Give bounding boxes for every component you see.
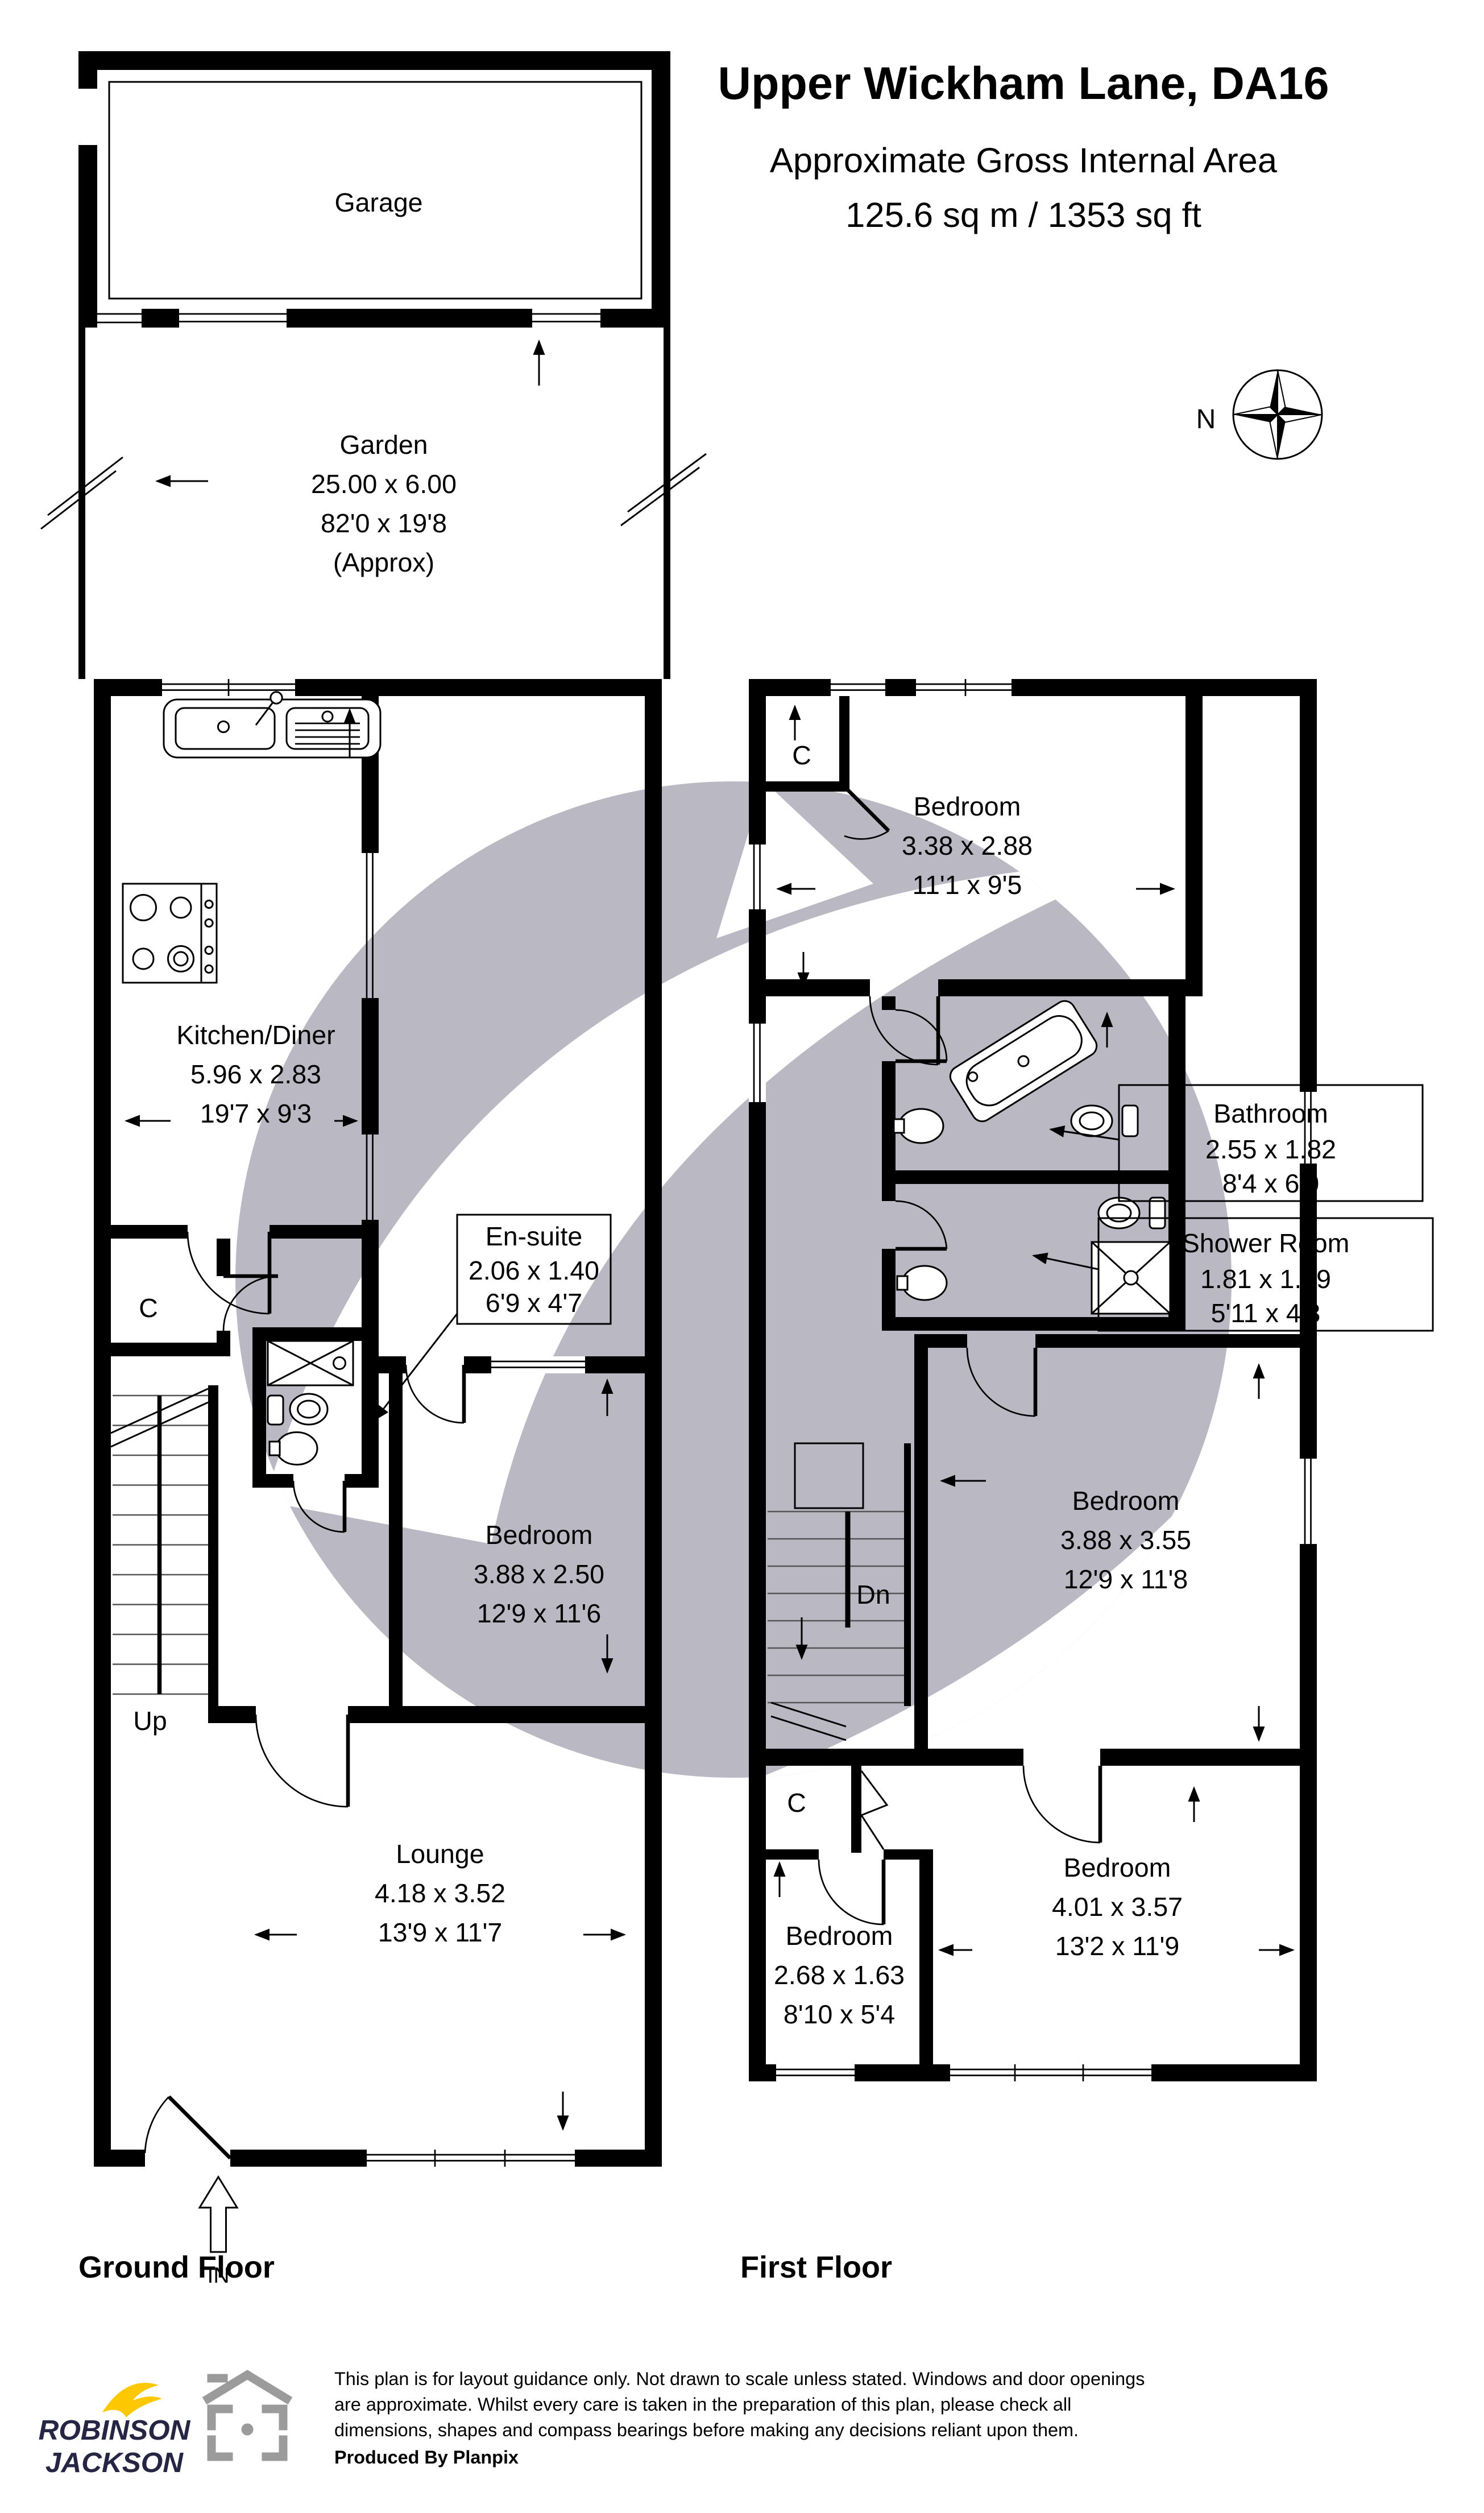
lounge-name: Lounge	[396, 1839, 484, 1869]
bedroom-small-imperial: 8'10 x 5'4	[784, 1999, 895, 2029]
bathroom-metric: 2.55 x 1.82	[1205, 1135, 1336, 1164]
garden-metric: 25.00 x 6.00	[311, 469, 457, 499]
bedroom-rear-imperial: 11'1 x 9'5	[913, 870, 1022, 900]
bedroom-front-metric: 4.01 x 3.57	[1052, 1892, 1183, 1922]
closet-label-ff-top: C	[792, 740, 811, 770]
kitchen-name: Kitchen/Diner	[176, 1020, 335, 1050]
closet-label-ff-bottom: C	[787, 1788, 806, 1818]
bedroom-gf-name: Bedroom	[486, 1520, 593, 1550]
toilet-icon	[268, 1394, 328, 1425]
bedroom-middle-imperial: 12'9 x 11'8	[1064, 1564, 1188, 1594]
room-label-bedroom-rear: Bedroom 3.38 x 2.88 11'1 x 9'5	[902, 792, 1033, 900]
room-label-bedroom-small: Bedroom 2.68 x 1.63 8'10 x 5'4	[774, 1921, 905, 2029]
garden-imperial: 82'0 x 19'8	[321, 508, 447, 538]
area-value: 125.6 sq m / 1353 sq ft	[845, 196, 1201, 235]
bedroom-rear-metric: 3.38 x 2.88	[902, 831, 1033, 860]
room-label-bedroom-middle: Bedroom 3.88 x 3.55 12'9 x 11'8	[1060, 1486, 1191, 1594]
garden-approx: (Approx)	[333, 548, 434, 577]
produced-by: Produced By Planpix	[334, 2447, 519, 2468]
floorplan-page: Upper Wickham Lane, DA16 Approximate Gro…	[0, 0, 1484, 2513]
ground-floor-label: Ground Floor	[78, 2250, 275, 2284]
kitchen-imperial: 19'7 x 9'3	[200, 1099, 312, 1128]
kitchen-metric: 5.96 x 2.83	[190, 1059, 321, 1089]
ensuite-imperial: 6'9 x 4'7	[486, 1288, 582, 1318]
bedroom-middle-metric: 3.88 x 3.55	[1060, 1525, 1191, 1555]
toilet-icon-bathroom	[1071, 1106, 1138, 1136]
first-floor-label: First Floor	[740, 2250, 892, 2284]
room-label-bedroom-front: Bedroom 4.01 x 3.57 13'2 x 11'9	[1052, 1853, 1183, 1961]
sink-icon	[164, 692, 380, 757]
compass-north-label: N	[1196, 404, 1216, 434]
lounge-metric: 4.18 x 3.52	[375, 1878, 505, 1908]
bathroom-imperial: 8'4 x 6'0	[1222, 1169, 1319, 1198]
disclaimer-line2: are approximate. Whilst every care is ta…	[334, 2394, 1071, 2415]
brand-line2: JACKSON	[45, 2447, 184, 2478]
brand-line1: ROBINSON	[39, 2415, 191, 2446]
bedroom-small-name: Bedroom	[786, 1921, 893, 1951]
lounge-imperial: 13'9 x 11'7	[378, 1918, 503, 1947]
bedroom-front-imperial: 13'2 x 11'9	[1055, 1931, 1180, 1961]
bedroom-rear-name: Bedroom	[914, 792, 1021, 821]
ensuite-name: En-suite	[486, 1222, 583, 1251]
bedroom-gf-metric: 3.88 x 2.50	[474, 1559, 604, 1589]
hob-icon	[123, 884, 217, 983]
shower-icon	[268, 1341, 353, 1385]
bedroom-front-name: Bedroom	[1064, 1853, 1171, 1882]
bathroom-name: Bathroom	[1213, 1099, 1328, 1128]
page-title: Upper Wickham Lane, DA16	[718, 58, 1329, 109]
shower-name: Shower Room	[1182, 1228, 1350, 1258]
room-label-bedroom-gf: Bedroom 3.88 x 2.50 12'9 x 11'6	[474, 1520, 604, 1628]
disclaimer-line3: dimensions, shapes and compass bearings …	[334, 2420, 1079, 2440]
bedroom-middle-name: Bedroom	[1072, 1486, 1180, 1516]
shower-metric: 1.81 x 1.29	[1200, 1264, 1331, 1294]
shower-imperial: 5'11 x 4'3	[1211, 1298, 1321, 1328]
up-label: Up	[133, 1706, 167, 1736]
bedroom-small-metric: 2.68 x 1.63	[774, 1960, 905, 1990]
garden-name: Garden	[339, 430, 428, 459]
bedroom-gf-imperial: 12'9 x 11'6	[477, 1599, 602, 1628]
room-label-garage: Garage	[334, 188, 422, 217]
dn-label: Dn	[856, 1580, 890, 1609]
closet-label-gf: C	[139, 1293, 158, 1323]
room-label-kitchen-diner: Kitchen/Diner 5.96 x 2.83 19'7 x 9'3	[176, 1020, 335, 1128]
ensuite-metric: 2.06 x 1.40	[469, 1256, 599, 1285]
area-subtitle: Approximate Gross Internal Area	[770, 141, 1278, 180]
disclaimer-line1: This plan is for layout guidance only. N…	[334, 2369, 1145, 2389]
toilet-icon-shower-room	[1099, 1198, 1165, 1228]
shower-icon-first-floor	[1092, 1242, 1170, 1314]
